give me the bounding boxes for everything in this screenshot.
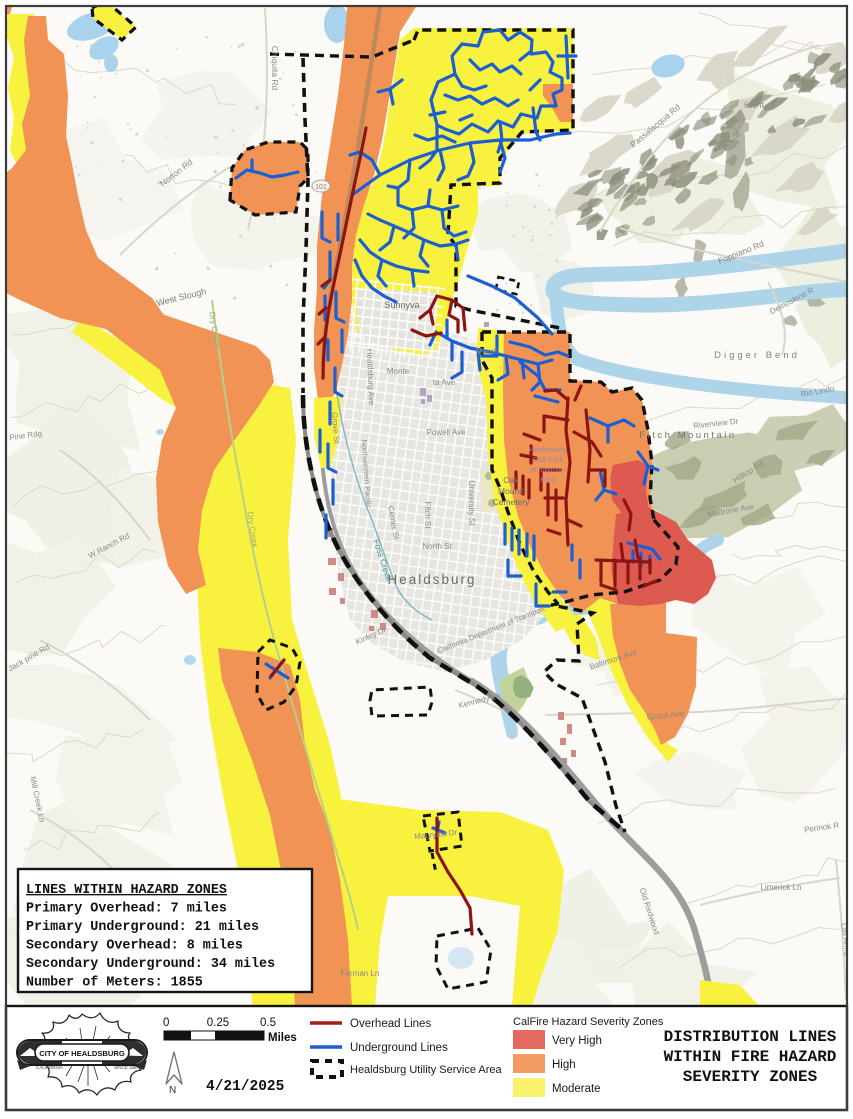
svg-text:SINCE 1867: SINCE 1867 <box>114 1065 140 1070</box>
svg-text:DISTRIBUTION LINES: DISTRIBUTION LINES <box>664 1028 837 1046</box>
svg-text:CITY OF HEALDSBURG: CITY OF HEALDSBURG <box>39 1049 125 1058</box>
svg-text:Primary Overhead: 7 miles: Primary Overhead: 7 miles <box>26 902 227 917</box>
svg-text:Mound: Mound <box>498 486 524 496</box>
svg-text:Secondary Overhead: 8 miles: Secondary Overhead: 8 miles <box>26 939 243 954</box>
svg-text:4/21/2025: 4/21/2025 <box>206 1079 284 1095</box>
svg-text:WITHIN FIRE HAZARD: WITHIN FIRE HAZARD <box>664 1048 837 1066</box>
svg-text:101: 101 <box>315 184 327 191</box>
svg-text:Digger Bend: Digger Bend <box>714 350 800 361</box>
svg-text:Golf Club: Golf Club <box>532 455 563 464</box>
svg-text:Primary Underground: 21 miles: Primary Underground: 21 miles <box>26 920 259 935</box>
svg-text:602 ft: 602 ft <box>744 101 765 110</box>
svg-text:Number of Meters: 1855: Number of Meters: 1855 <box>26 976 203 991</box>
svg-text:Healdsburg: Healdsburg <box>529 445 567 454</box>
svg-text:N: N <box>169 1085 176 1096</box>
svg-text:Secondary Underground: 34 mile: Secondary Underground: 34 miles <box>26 957 275 972</box>
svg-text:March: March <box>476 347 498 356</box>
svg-text:CALIFORNIA: CALIFORNIA <box>36 1065 63 1070</box>
svg-text:University St: University St <box>467 481 476 527</box>
svg-text:Fitch St: Fitch St <box>423 501 432 529</box>
svg-text:Monte: Monte <box>387 367 410 376</box>
svg-text:0.25: 0.25 <box>207 1017 229 1029</box>
svg-text:Cemetery: Cemetery <box>493 497 531 507</box>
svg-text:Sunnyva: Sunnyva <box>384 300 419 310</box>
svg-text:Moderate: Moderate <box>552 1083 601 1095</box>
svg-text:High: High <box>552 1059 576 1071</box>
svg-text:LINES WITHIN HAZARD ZONES: LINES WITHIN HAZARD ZONES <box>26 883 227 898</box>
svg-text:Underground Lines: Underground Lines <box>350 1042 448 1054</box>
svg-text:Healdsburg: Healdsburg <box>387 572 476 587</box>
svg-text:0.5: 0.5 <box>260 1017 276 1029</box>
svg-text:Very High: Very High <box>552 1035 602 1047</box>
svg-text:Healdsburg Utility Service Are: Healdsburg Utility Service Area <box>350 1064 503 1076</box>
svg-text:Ferman Ln: Ferman Ln <box>341 969 380 978</box>
svg-text:CalFire Hazard Severity Zones: CalFire Hazard Severity Zones <box>513 1016 664 1028</box>
svg-text:Fitch Mountain: Fitch Mountain <box>639 430 736 441</box>
svg-text:SEVERITY ZONES: SEVERITY ZONES <box>683 1068 818 1086</box>
svg-text:Limerick Ln: Limerick Ln <box>761 883 802 892</box>
svg-text:Park: Park <box>540 475 556 484</box>
svg-text:ta Ave: ta Ave <box>433 378 456 387</box>
svg-text:Chiquita Rd: Chiquita Rd <box>270 46 280 91</box>
svg-text:Miles: Miles <box>268 1032 297 1044</box>
svg-text:Oak: Oak <box>503 475 519 485</box>
svg-text:Powell Ave: Powell Ave <box>427 428 467 437</box>
svg-text:0: 0 <box>163 1017 169 1029</box>
svg-text:at Tayman: at Tayman <box>531 465 565 474</box>
svg-text:Overhead Lines: Overhead Lines <box>350 1018 431 1030</box>
svg-text:North St: North St <box>422 542 452 551</box>
